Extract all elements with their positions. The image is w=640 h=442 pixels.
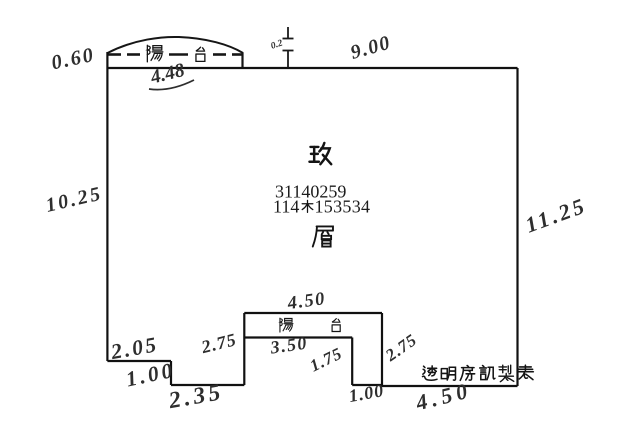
svg-text:3.50: 3.50 [268,333,309,358]
svg-text:2.05: 2.05 [108,332,160,364]
svg-text:4.50: 4.50 [285,289,327,314]
svg-text:2.75: 2.75 [381,330,420,365]
svg-text:2.75: 2.75 [198,329,238,357]
svg-text:0.2: 0.2 [270,38,285,51]
svg-text:9.00: 9.00 [348,32,393,64]
svg-text:10.25: 10.25 [44,182,105,216]
svg-text:11.25: 11.25 [522,192,590,237]
svg-text:1.00: 1.00 [124,358,178,392]
svg-text:4.48: 4.48 [148,60,187,89]
svg-text:153534: 153534 [315,197,371,217]
svg-text:1.75: 1.75 [307,344,346,376]
svg-text:0.60: 0.60 [50,44,97,75]
svg-text:114: 114 [273,197,299,217]
svg-text:4.50: 4.50 [412,377,474,415]
